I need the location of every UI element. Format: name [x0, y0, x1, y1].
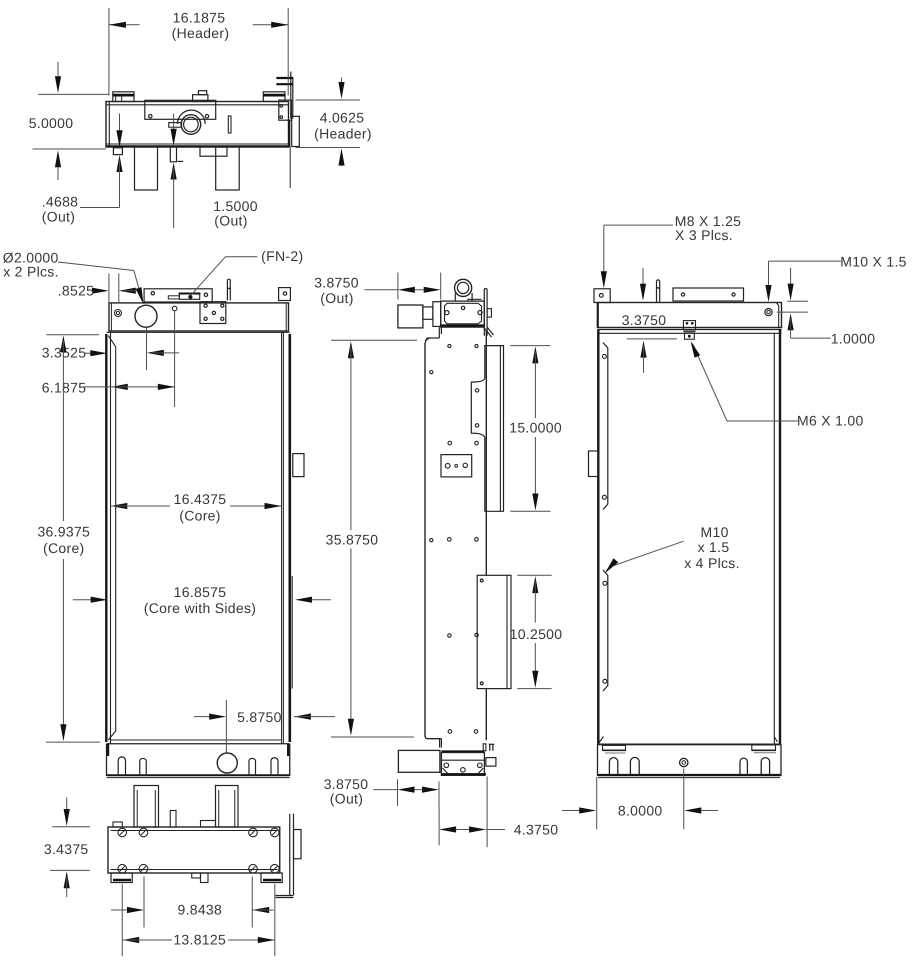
svg-text:4.3750: 4.3750	[514, 822, 559, 838]
svg-text:(Core): (Core)	[179, 507, 220, 523]
svg-text:(Header): (Header)	[172, 25, 230, 41]
svg-text:3.4375: 3.4375	[44, 841, 89, 857]
svg-text:16.8575: 16.8575	[174, 584, 227, 600]
svg-text:5.8750: 5.8750	[237, 709, 282, 725]
svg-text:(FN-2): (FN-2)	[261, 248, 303, 264]
svg-text:35.8750: 35.8750	[326, 532, 379, 548]
svg-text:X 3 Plcs.: X 3 Plcs.	[675, 227, 733, 243]
svg-text:4.0625: 4.0625	[320, 110, 365, 126]
svg-text:(Out): (Out)	[330, 791, 363, 807]
svg-text:x 2 Plcs.: x 2 Plcs.	[3, 264, 59, 280]
svg-text:M6 X 1.00: M6 X 1.00	[797, 413, 864, 429]
svg-text:M10: M10	[701, 524, 729, 540]
svg-text:3.3750: 3.3750	[622, 312, 667, 328]
svg-text:1.0000: 1.0000	[831, 331, 876, 347]
svg-text:16.1875: 16.1875	[173, 10, 226, 26]
svg-text:(Core): (Core)	[43, 540, 84, 556]
svg-text:15.0000: 15.0000	[509, 420, 562, 436]
svg-text:(Header): (Header)	[314, 126, 372, 142]
svg-text:(Out): (Out)	[320, 290, 353, 306]
svg-text:16.4375: 16.4375	[174, 491, 227, 507]
svg-text:(Out): (Out)	[42, 209, 75, 225]
svg-text:6.1875: 6.1875	[42, 379, 87, 395]
svg-text:(Core with Sides): (Core with Sides)	[144, 600, 256, 616]
svg-text:10.2500: 10.2500	[510, 626, 563, 642]
svg-text:x 1.5: x 1.5	[698, 539, 730, 555]
svg-text:(Out): (Out)	[214, 213, 247, 229]
svg-text:8.0000: 8.0000	[618, 802, 663, 818]
svg-text:x 4 Plcs.: x 4 Plcs.	[684, 555, 740, 571]
svg-text:.4688: .4688	[42, 194, 79, 210]
svg-text:5.0000: 5.0000	[29, 115, 74, 131]
svg-text:9.8438: 9.8438	[177, 902, 222, 918]
svg-text:M10 X 1.5: M10 X 1.5	[840, 253, 907, 269]
svg-text:36.9375: 36.9375	[37, 524, 90, 540]
svg-text:.8525: .8525	[58, 283, 95, 299]
svg-text:3.8750: 3.8750	[314, 275, 359, 291]
svg-text:13.8125: 13.8125	[173, 932, 226, 948]
